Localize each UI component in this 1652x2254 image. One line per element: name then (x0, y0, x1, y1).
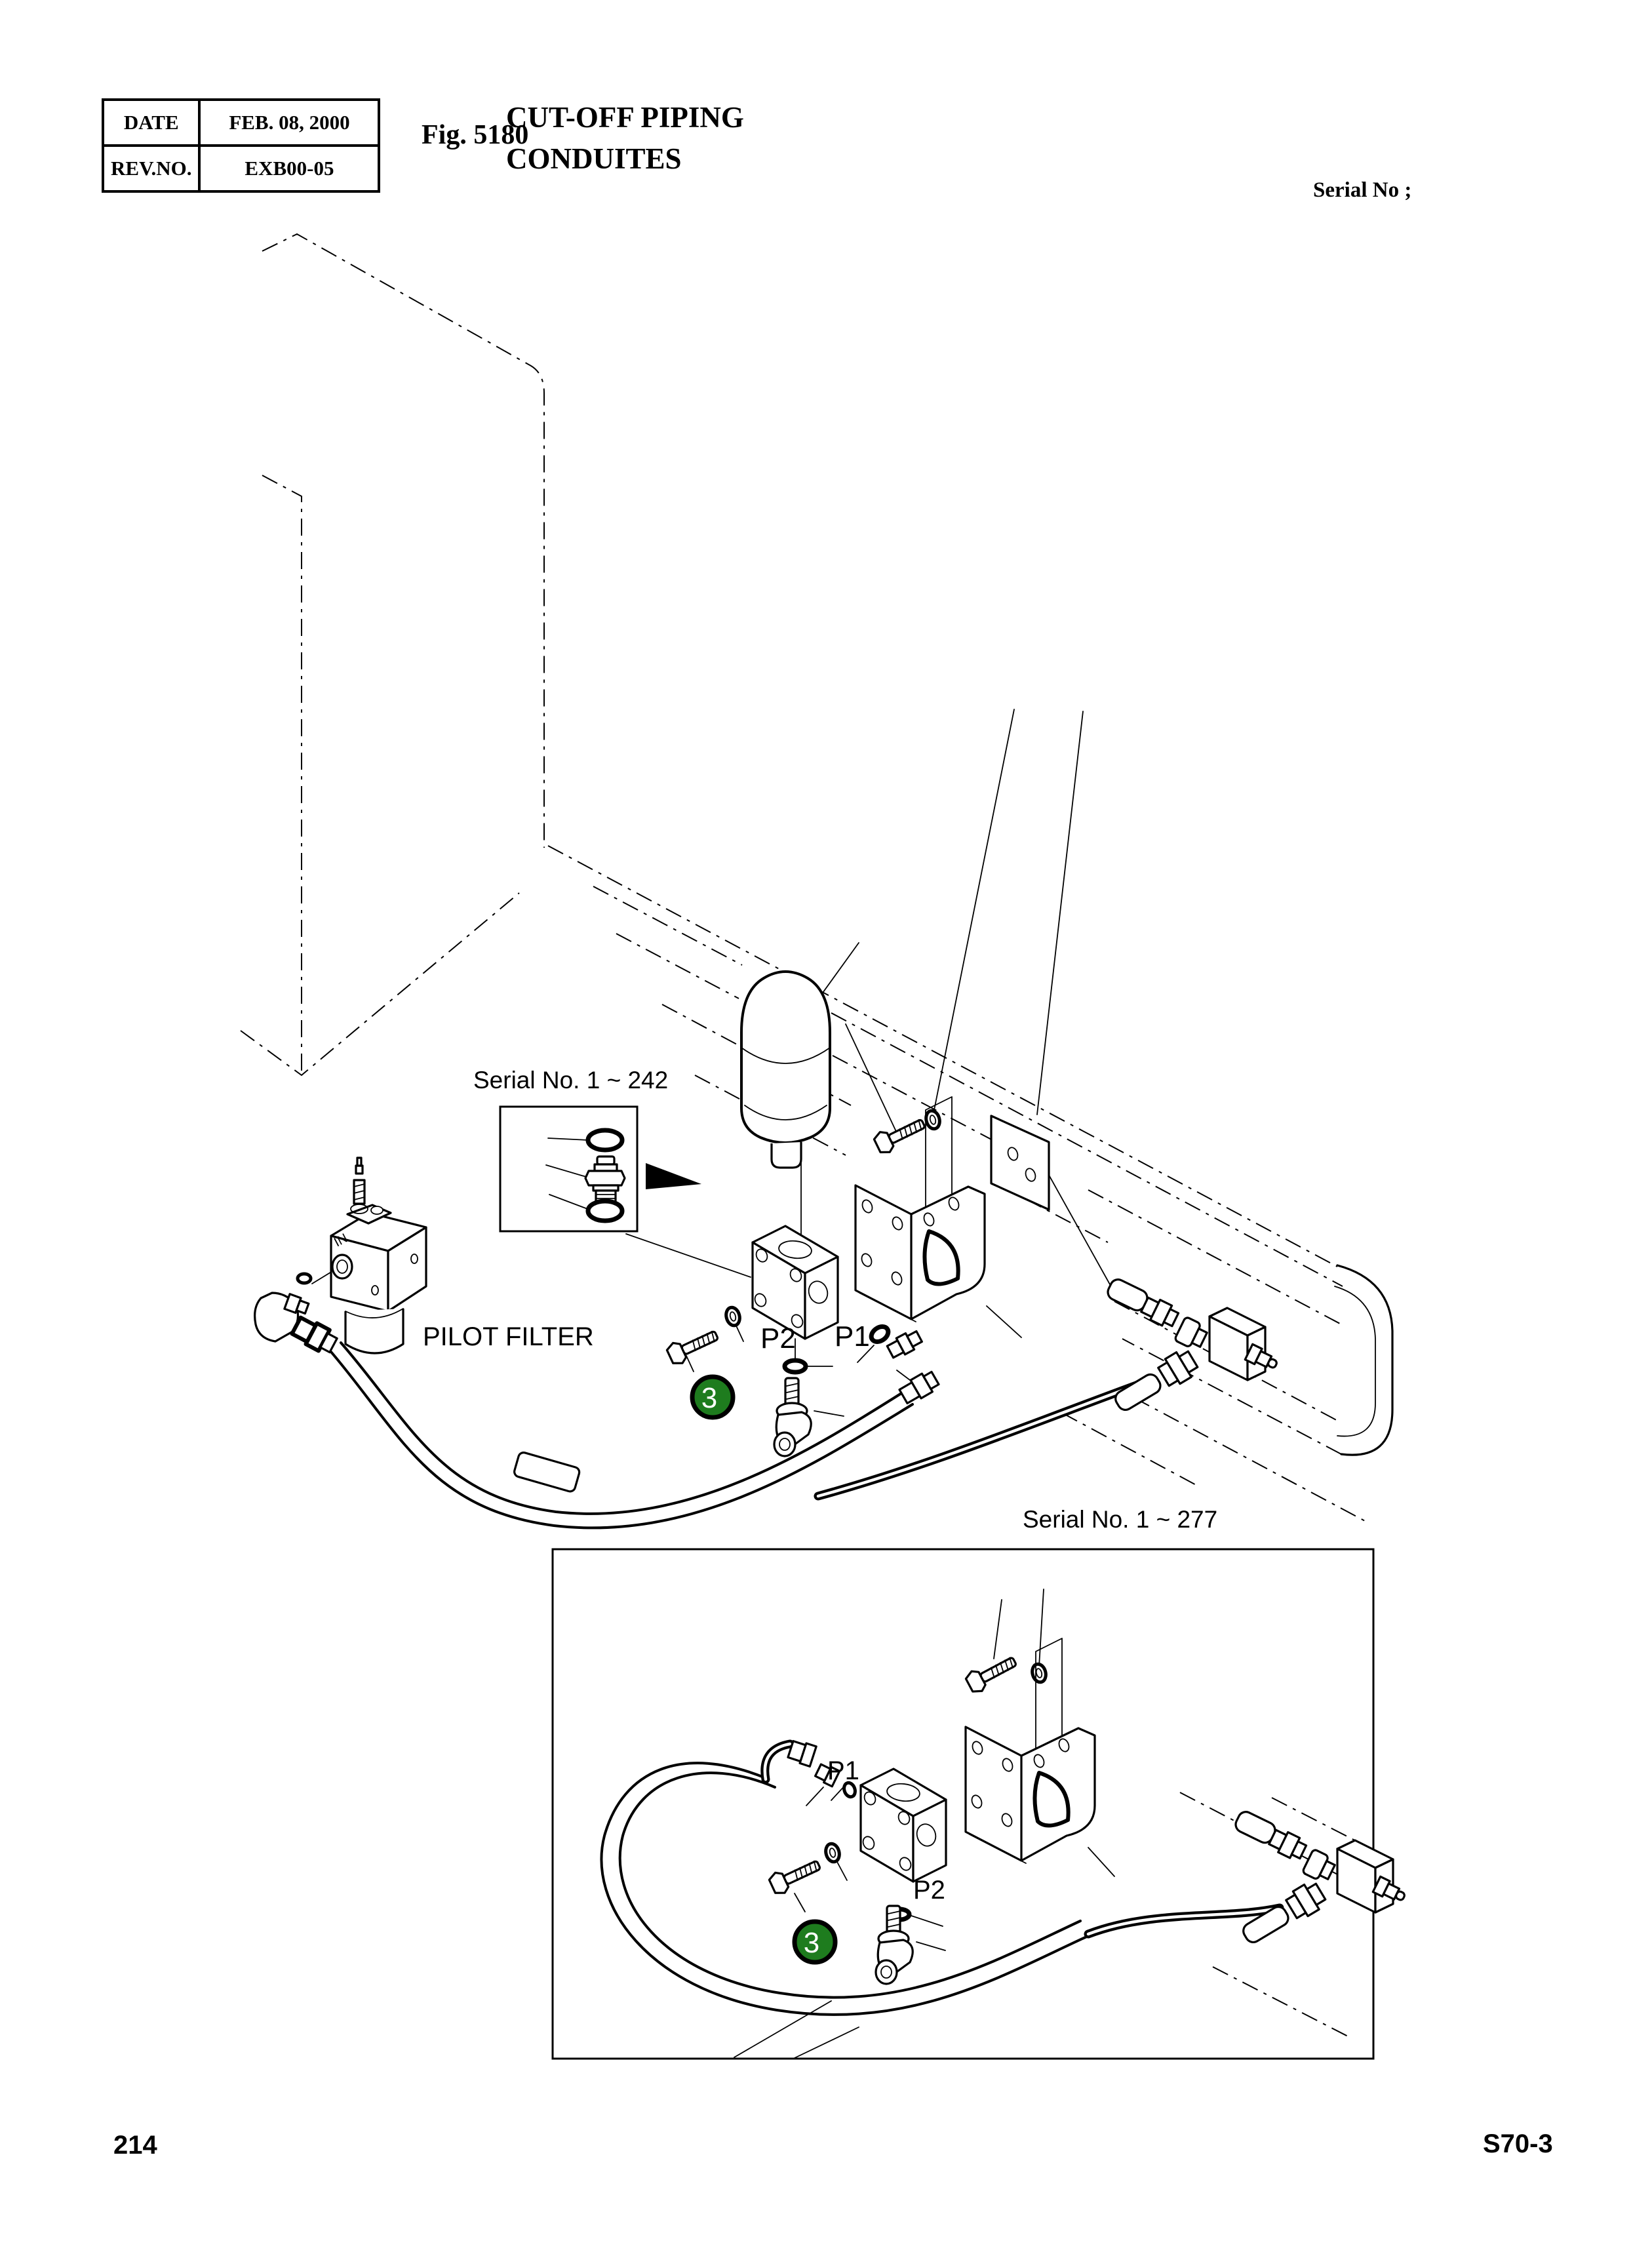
beam-washer (924, 1109, 942, 1130)
lower-frame (553, 1549, 1373, 2059)
lower-callout-number: 3 (804, 1927, 819, 1959)
mounting-plate (991, 1116, 1049, 1210)
pilot-hose (331, 1343, 940, 1528)
accumulator (741, 972, 830, 1168)
lower-p2-port-label: P2 (913, 1876, 945, 1905)
doc-code: S70-3 (1483, 2129, 1553, 2159)
exploded-diagram: IN 3 Serial (0, 0, 1652, 2254)
inset-box (500, 1107, 637, 1231)
lower-serial-range-label: Serial No. 1 ~ 277 (1023, 1506, 1217, 1533)
hose-end-fitting (898, 1369, 940, 1406)
p2-port-label: P2 (760, 1322, 796, 1354)
inset-oring-bottom (588, 1201, 622, 1221)
p2-oring (785, 1360, 806, 1372)
leader-lines (312, 709, 1113, 1416)
filter-oring (298, 1274, 311, 1283)
elbow-fitting (774, 1378, 811, 1456)
return-hose (818, 1380, 1150, 1496)
hose-end-sleeve (513, 1452, 581, 1493)
valve-assembly (1105, 1277, 1280, 1413)
hose-nut (291, 1315, 339, 1356)
p1-oring (869, 1324, 891, 1345)
pilot-filter: IN (255, 1158, 426, 1356)
lower-callout-badge: 3 (795, 1922, 835, 1962)
upper-diagram: IN 3 Serial (241, 234, 1392, 1528)
lower-p1-port-label: P1 (827, 1756, 859, 1785)
manual-page: DATE FEB. 08, 2000 REV.NO. EXB00-05 Fig.… (0, 0, 1652, 2254)
page-number: 214 (113, 2131, 157, 2160)
block-bolt (665, 1325, 721, 1367)
upper-serial-range-label: Serial No. 1 ~ 242 (473, 1067, 668, 1094)
pilot-filter-label: PILOT FILTER (423, 1322, 594, 1351)
inset-oring-top (588, 1130, 622, 1150)
p1-port-label: P1 (835, 1320, 870, 1353)
port-nipple (886, 1328, 923, 1360)
lower-diagram: 3 Serial No. 1 ~ 277 P1 P2 (553, 1506, 1407, 2059)
callout-badge: 3 (692, 1377, 733, 1417)
beam-bolt (873, 1113, 928, 1156)
block-washer (724, 1306, 742, 1327)
tank-phantom-outline (241, 234, 544, 1075)
pointer-arrow-icon (646, 1163, 701, 1189)
callout-number: 3 (701, 1382, 717, 1414)
filter-ring (371, 1206, 383, 1214)
